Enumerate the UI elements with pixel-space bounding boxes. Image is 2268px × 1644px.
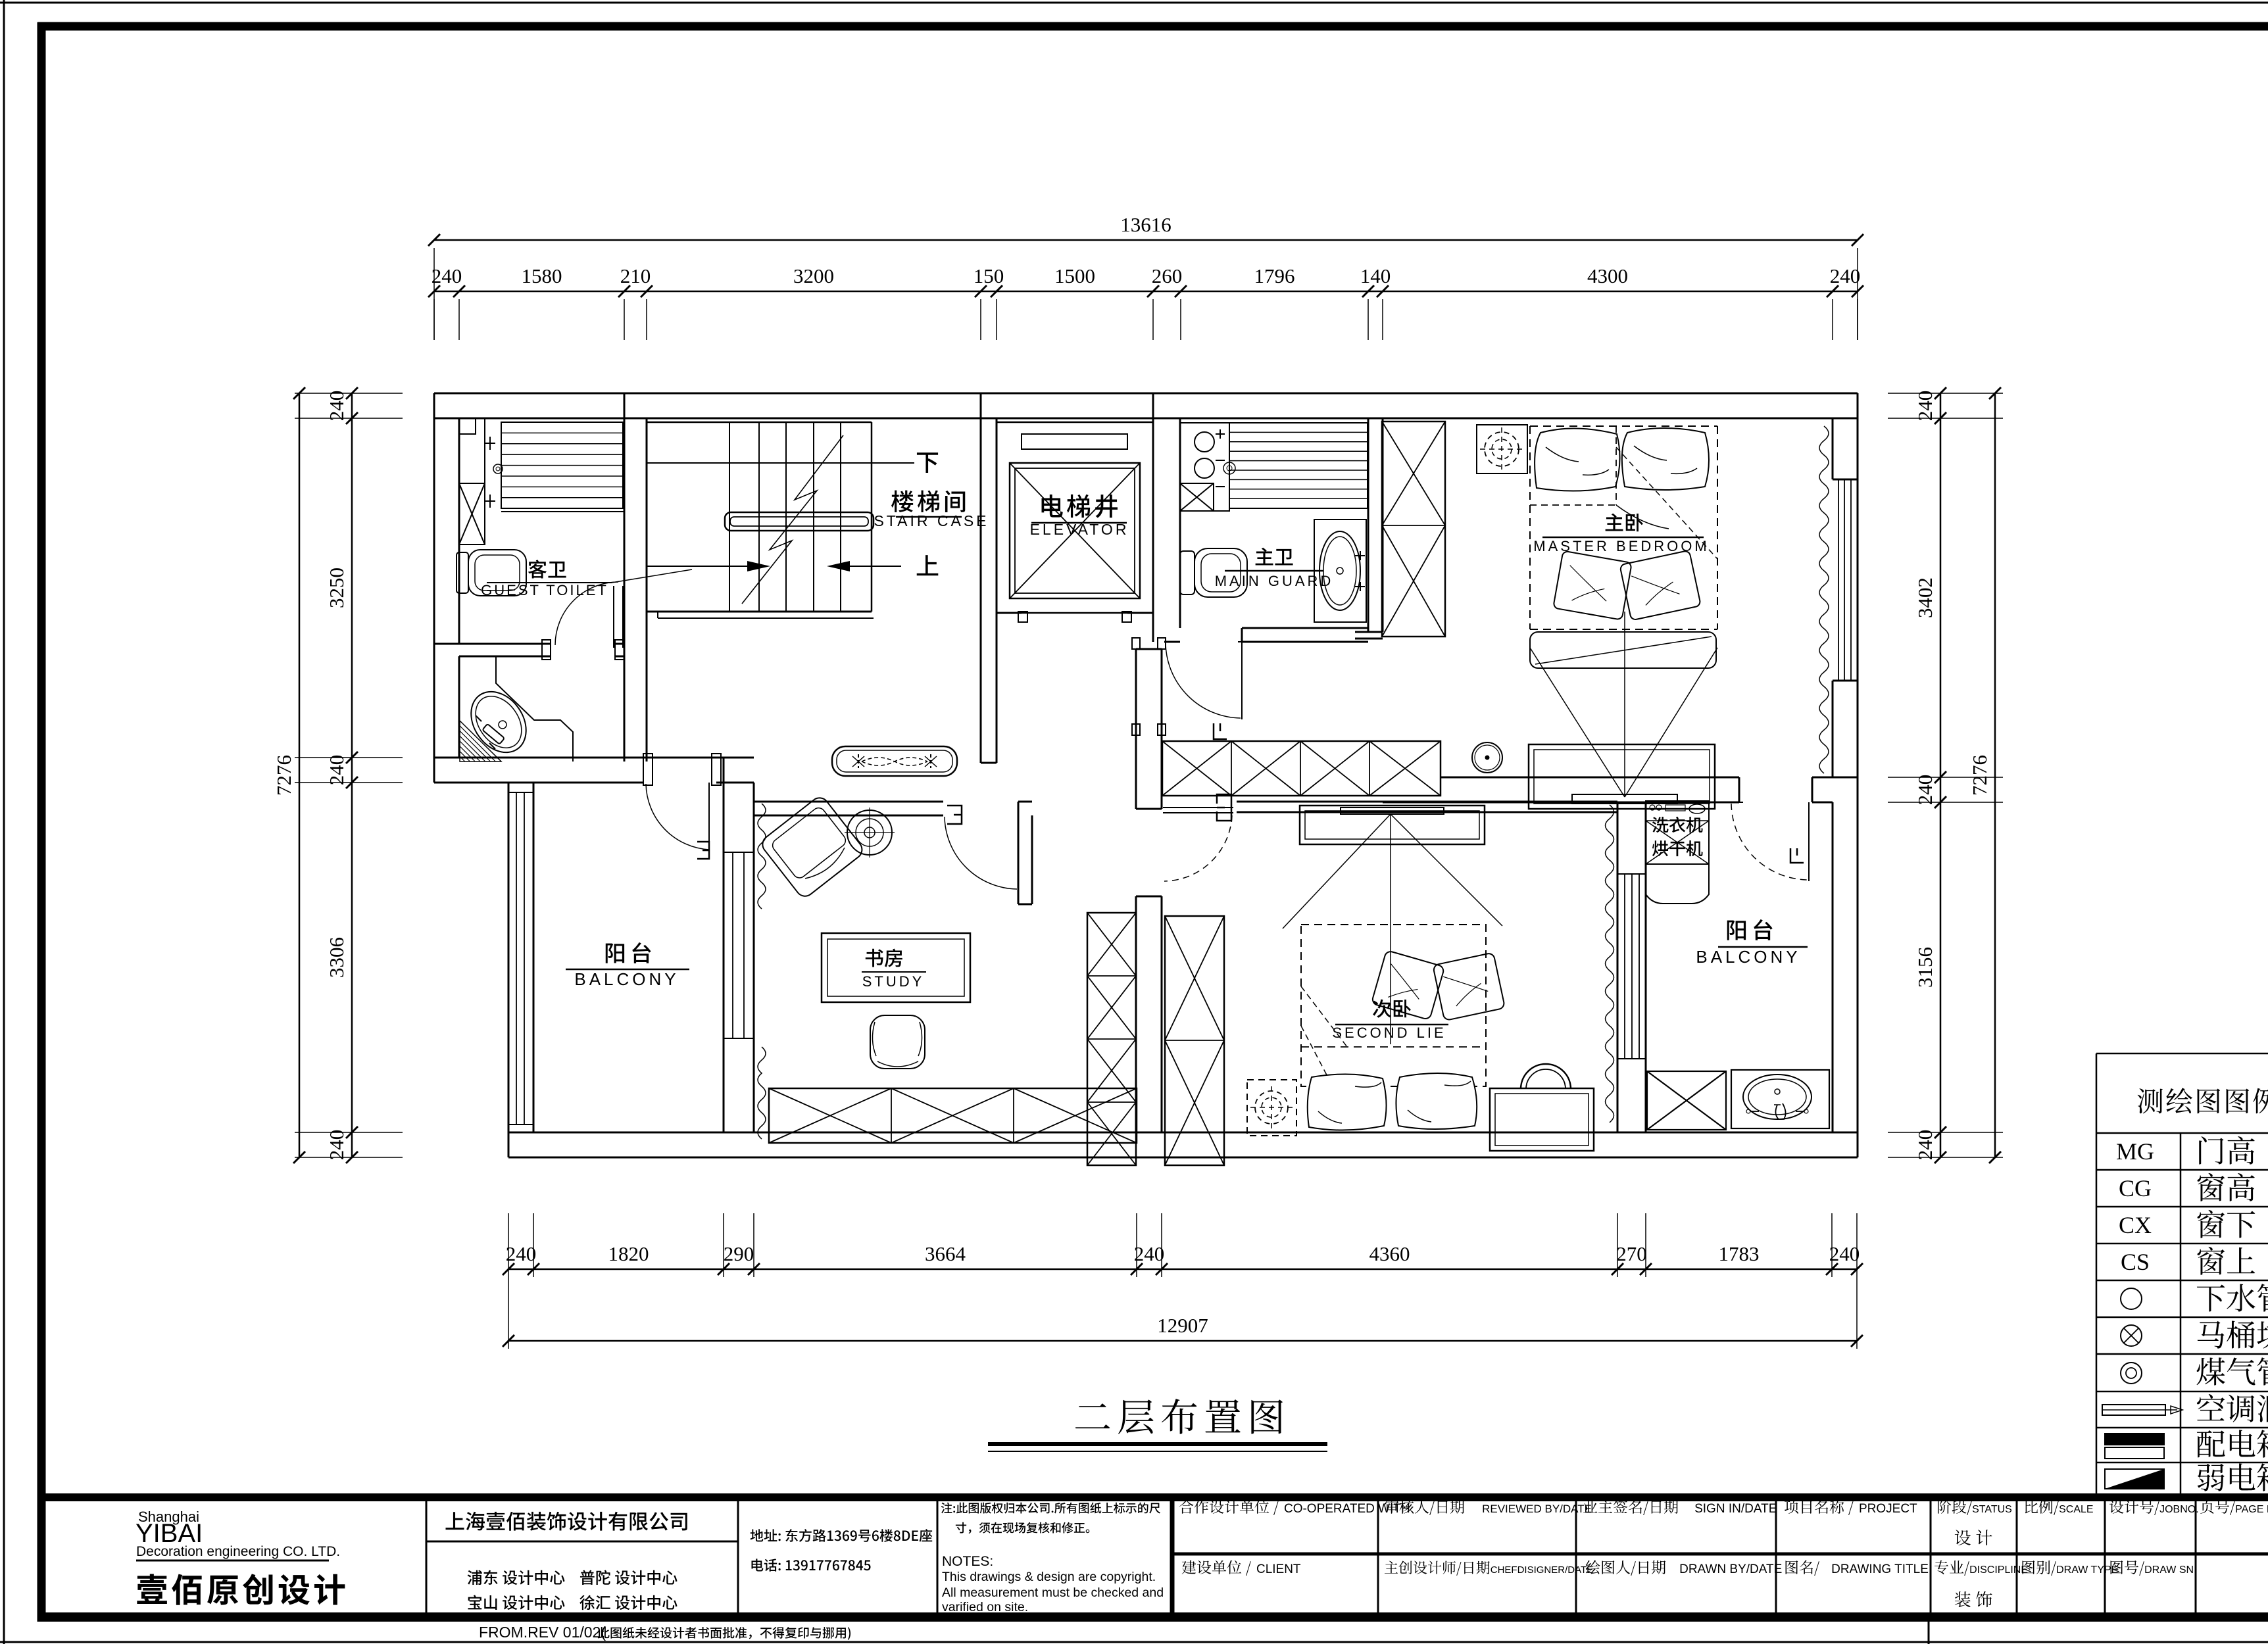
svg-text:BALCONY: BALCONY [1696,947,1800,967]
svg-text:SIGN IN/DATE: SIGN IN/DATE [1694,1502,1777,1516]
svg-text:STUDY: STUDY [862,973,925,990]
svg-text:GUEST TOILET: GUEST TOILET [481,582,608,598]
svg-text:STAIR CASE: STAIR CASE [874,512,989,529]
svg-text:3402: 3402 [1913,577,1936,618]
svg-text:240: 240 [325,1130,348,1161]
svg-text:240: 240 [1134,1242,1165,1265]
svg-text:240: 240 [1913,1130,1936,1161]
svg-text:MASTER BEDROOM: MASTER BEDROOM [1533,538,1709,554]
svg-text:CG: CG [2119,1175,2152,1201]
svg-text:DRAW SN: DRAW SN [2144,1564,2194,1576]
svg-text:DRAWING TITLE: DRAWING TITLE [1831,1562,1929,1576]
svg-text:SCALE: SCALE [2059,1504,2093,1515]
svg-text:CHEFDISIGNER/DATE: CHEFDISIGNER/DATE [1491,1564,1593,1576]
svg-text:CLIENT: CLIENT [1256,1562,1301,1576]
svg-text:240: 240 [325,391,348,422]
svg-text:JOBNO.: JOBNO. [2159,1504,2199,1515]
svg-text:7276: 7276 [1968,755,1991,796]
svg-text:290: 290 [724,1242,754,1265]
svg-text:1796: 1796 [1254,264,1295,287]
svg-text:ELEVATOR: ELEVATOR [1030,521,1129,538]
svg-text:240: 240 [1913,391,1936,422]
svg-text:4300: 4300 [1587,264,1628,287]
svg-text:MG: MG [2116,1138,2154,1165]
svg-text:240: 240 [1829,1242,1860,1265]
svg-text:FROM.REV 01/02(: FROM.REV 01/02( [479,1624,606,1641]
svg-text:DRAWN BY/DATE: DRAWN BY/DATE [1679,1562,1782,1576]
svg-text:240: 240 [325,755,348,786]
svg-text:NOTES:: NOTES: [942,1554,993,1569]
svg-text:BALCONY: BALCONY [574,969,679,989]
svg-text:CS: CS [2121,1249,2150,1275]
svg-text:DRAW TYPE: DRAW TYPE [2056,1564,2118,1576]
svg-text:12907: 12907 [1157,1314,1208,1337]
svg-text:3306: 3306 [325,937,348,978]
svg-text:3664: 3664 [925,1242,966,1265]
svg-text:260: 260 [1152,264,1183,287]
svg-text:CX: CX [2119,1212,2152,1238]
svg-text:1783: 1783 [1719,1242,1760,1265]
svg-text:PAGE N: PAGE N [2235,1504,2268,1515]
svg-text:varified on site.: varified on site. [942,1600,1028,1614]
svg-text:This drawings & design are cop: This drawings & design are copyright. [942,1570,1156,1584]
svg-text:210: 210 [620,264,651,287]
svg-text:REVIEWED BY/DATE: REVIEWED BY/DATE [1482,1503,1592,1515]
svg-text:13616: 13616 [1120,213,1171,236]
svg-text:DISCIPLINE: DISCIPLINE [1969,1564,2028,1576]
svg-text:240: 240 [506,1242,537,1265]
svg-text:7276: 7276 [272,755,295,796]
svg-text:All measurement must be checke: All measurement must be checked and [942,1585,1164,1600]
svg-text:240: 240 [431,264,462,287]
svg-text:240: 240 [1913,775,1936,806]
svg-text:Decoration engineering CO. LTD: Decoration engineering CO. LTD. [136,1544,340,1559]
svg-text:1820: 1820 [608,1242,649,1265]
svg-text:MAIN GUARD: MAIN GUARD [1215,573,1334,589]
svg-text:1500: 1500 [1054,264,1095,287]
svg-text:3200: 3200 [793,264,834,287]
svg-text:3250: 3250 [325,568,348,608]
svg-text:1580: 1580 [522,264,562,287]
svg-text:240: 240 [1830,264,1861,287]
svg-text:3156: 3156 [1913,947,1936,988]
svg-text:STATUS: STATUS [1972,1504,2012,1515]
svg-text:140: 140 [1360,264,1391,287]
svg-text:SECOND LIE: SECOND LIE [1332,1025,1446,1041]
svg-text:270: 270 [1616,1242,1647,1265]
svg-text:150: 150 [974,264,1004,287]
svg-text:PROJECT: PROJECT [1859,1502,1917,1516]
svg-text:4360: 4360 [1369,1242,1410,1265]
